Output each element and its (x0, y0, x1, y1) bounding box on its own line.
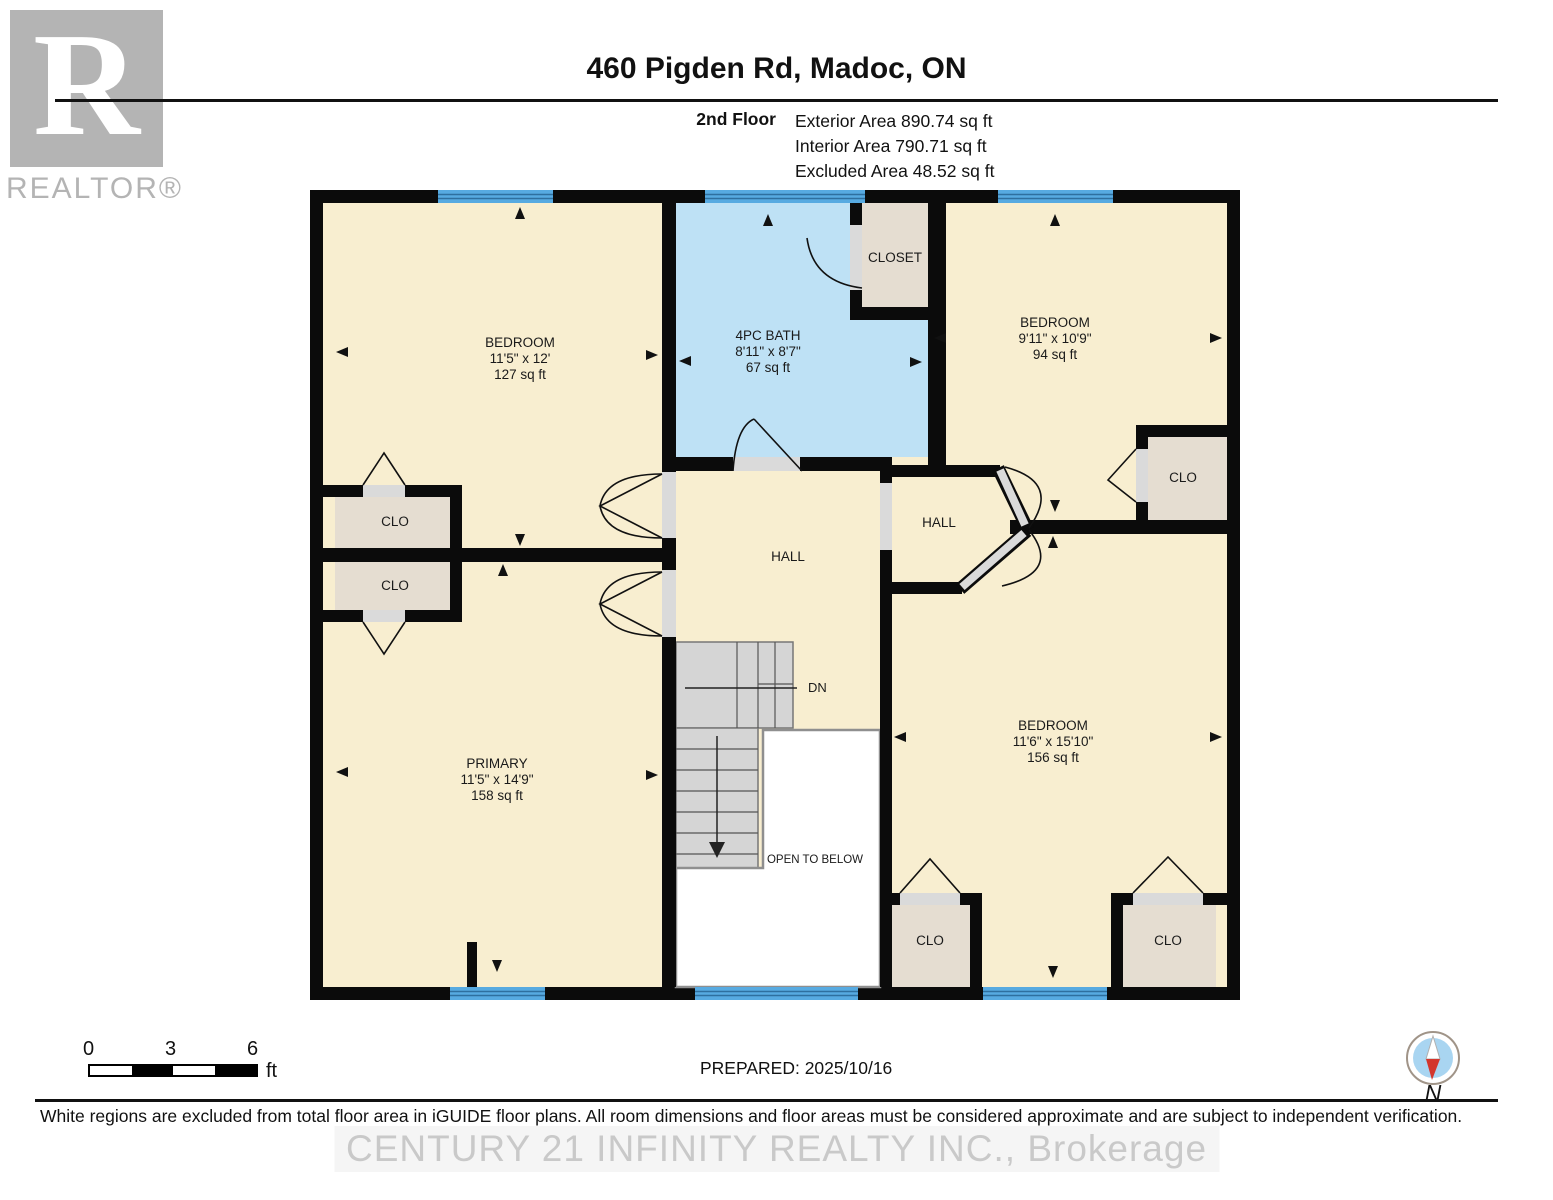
floor-plan: BEDROOM 11'5" x 12' 127 sq ft 4PC BATH 8… (310, 190, 1240, 1005)
svg-text:BEDROOM: BEDROOM (485, 335, 555, 350)
room-label-clo-left-upper: CLO (381, 514, 409, 529)
svg-text:94 sq ft: 94 sq ft (1033, 347, 1078, 362)
scale-0: 0 (83, 1038, 94, 1061)
svg-text:11'5" x 14'9": 11'5" x 14'9" (460, 772, 533, 787)
room-label-primary: PRIMARY 11'5" x 14'9" 158 sq ft (460, 756, 533, 803)
brokerage-watermark: CENTURY 21 INFINITY REALTY INC., Brokera… (334, 1126, 1219, 1172)
page-title: 460 Pigden Rd, Madoc, ON (0, 52, 1553, 86)
window-bottom-left (450, 987, 545, 1000)
room-label-hall-center: HALL (771, 549, 805, 564)
window-top-left (438, 190, 553, 203)
interior-area: Interior Area 790.71 sq ft (795, 134, 994, 159)
svg-text:BEDROOM: BEDROOM (1020, 315, 1090, 330)
scale-3: 3 (165, 1038, 176, 1061)
realtor-logo-icon: R (10, 10, 163, 167)
room-label-clo-bottom-left: CLO (916, 933, 944, 948)
open-to-below-label: OPEN TO BELOW (767, 854, 863, 866)
scale-unit: ft (266, 1060, 277, 1083)
scale-bar-segments (88, 1064, 258, 1077)
room-label-bedroom-tl: BEDROOM 11'5" x 12' 127 sq ft (485, 335, 555, 382)
disclaimer-text: White regions are excluded from total fl… (40, 1106, 1530, 1127)
footer-divider (35, 1099, 1498, 1102)
window-top-right (998, 190, 1113, 203)
window-bottom-right (983, 987, 1107, 1000)
svg-text:BEDROOM: BEDROOM (1018, 718, 1088, 733)
area-stats: Exterior Area 890.74 sq ft Interior Area… (795, 109, 994, 184)
window-bottom-middle (695, 987, 858, 1000)
svg-text:156 sq ft: 156 sq ft (1027, 750, 1079, 765)
svg-text:158 sq ft: 158 sq ft (471, 788, 523, 803)
svg-text:PRIMARY: PRIMARY (466, 756, 527, 771)
realtor-logo-text: REALTOR® (6, 172, 178, 206)
exterior-area: Exterior Area 890.74 sq ft (795, 109, 994, 134)
svg-text:11'5" x 12': 11'5" x 12' (490, 351, 551, 366)
floor-plan-page: R REALTOR® 460 Pigden Rd, Madoc, ON 2nd … (0, 0, 1553, 1200)
svg-text:67 sq ft: 67 sq ft (746, 360, 791, 375)
floor-label: 2nd Floor (600, 109, 776, 130)
svg-text:8'11" x 8'7": 8'11" x 8'7" (735, 344, 801, 359)
svg-text:4PC BATH: 4PC BATH (735, 328, 800, 343)
window-top-middle (705, 190, 865, 203)
room-label-closet-top: CLOSET (868, 250, 922, 265)
svg-text:9'11" x 10'9": 9'11" x 10'9" (1018, 331, 1091, 346)
room-label-clo-tr: CLO (1169, 470, 1197, 485)
stairs-dn-label: DN (808, 680, 827, 695)
prepared-date: PREPARED: 2025/10/16 (700, 1058, 892, 1079)
room-label-clo-bottom-right: CLO (1154, 933, 1182, 948)
room-label-hall-right: HALL (922, 515, 956, 530)
header-divider (55, 99, 1498, 102)
excluded-area: Excluded Area 48.52 sq ft (795, 159, 994, 184)
svg-text:11'6" x 15'10": 11'6" x 15'10" (1013, 734, 1094, 749)
compass-north-label: N (1418, 1080, 1448, 1107)
scale-6: 6 (247, 1038, 258, 1061)
room-label-clo-left-lower: CLO (381, 578, 409, 593)
svg-text:127 sq ft: 127 sq ft (494, 367, 546, 382)
